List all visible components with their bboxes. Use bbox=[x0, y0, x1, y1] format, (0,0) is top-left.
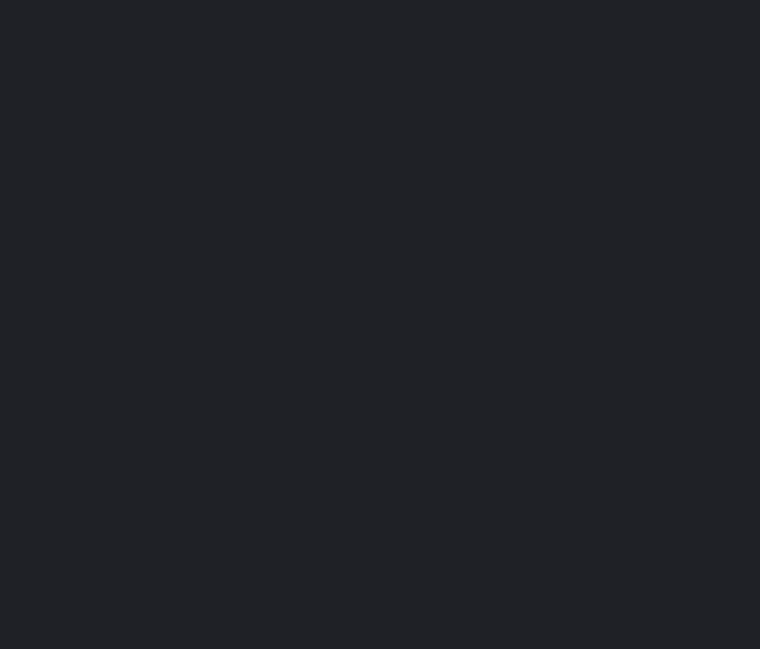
blank-screen bbox=[0, 0, 760, 649]
